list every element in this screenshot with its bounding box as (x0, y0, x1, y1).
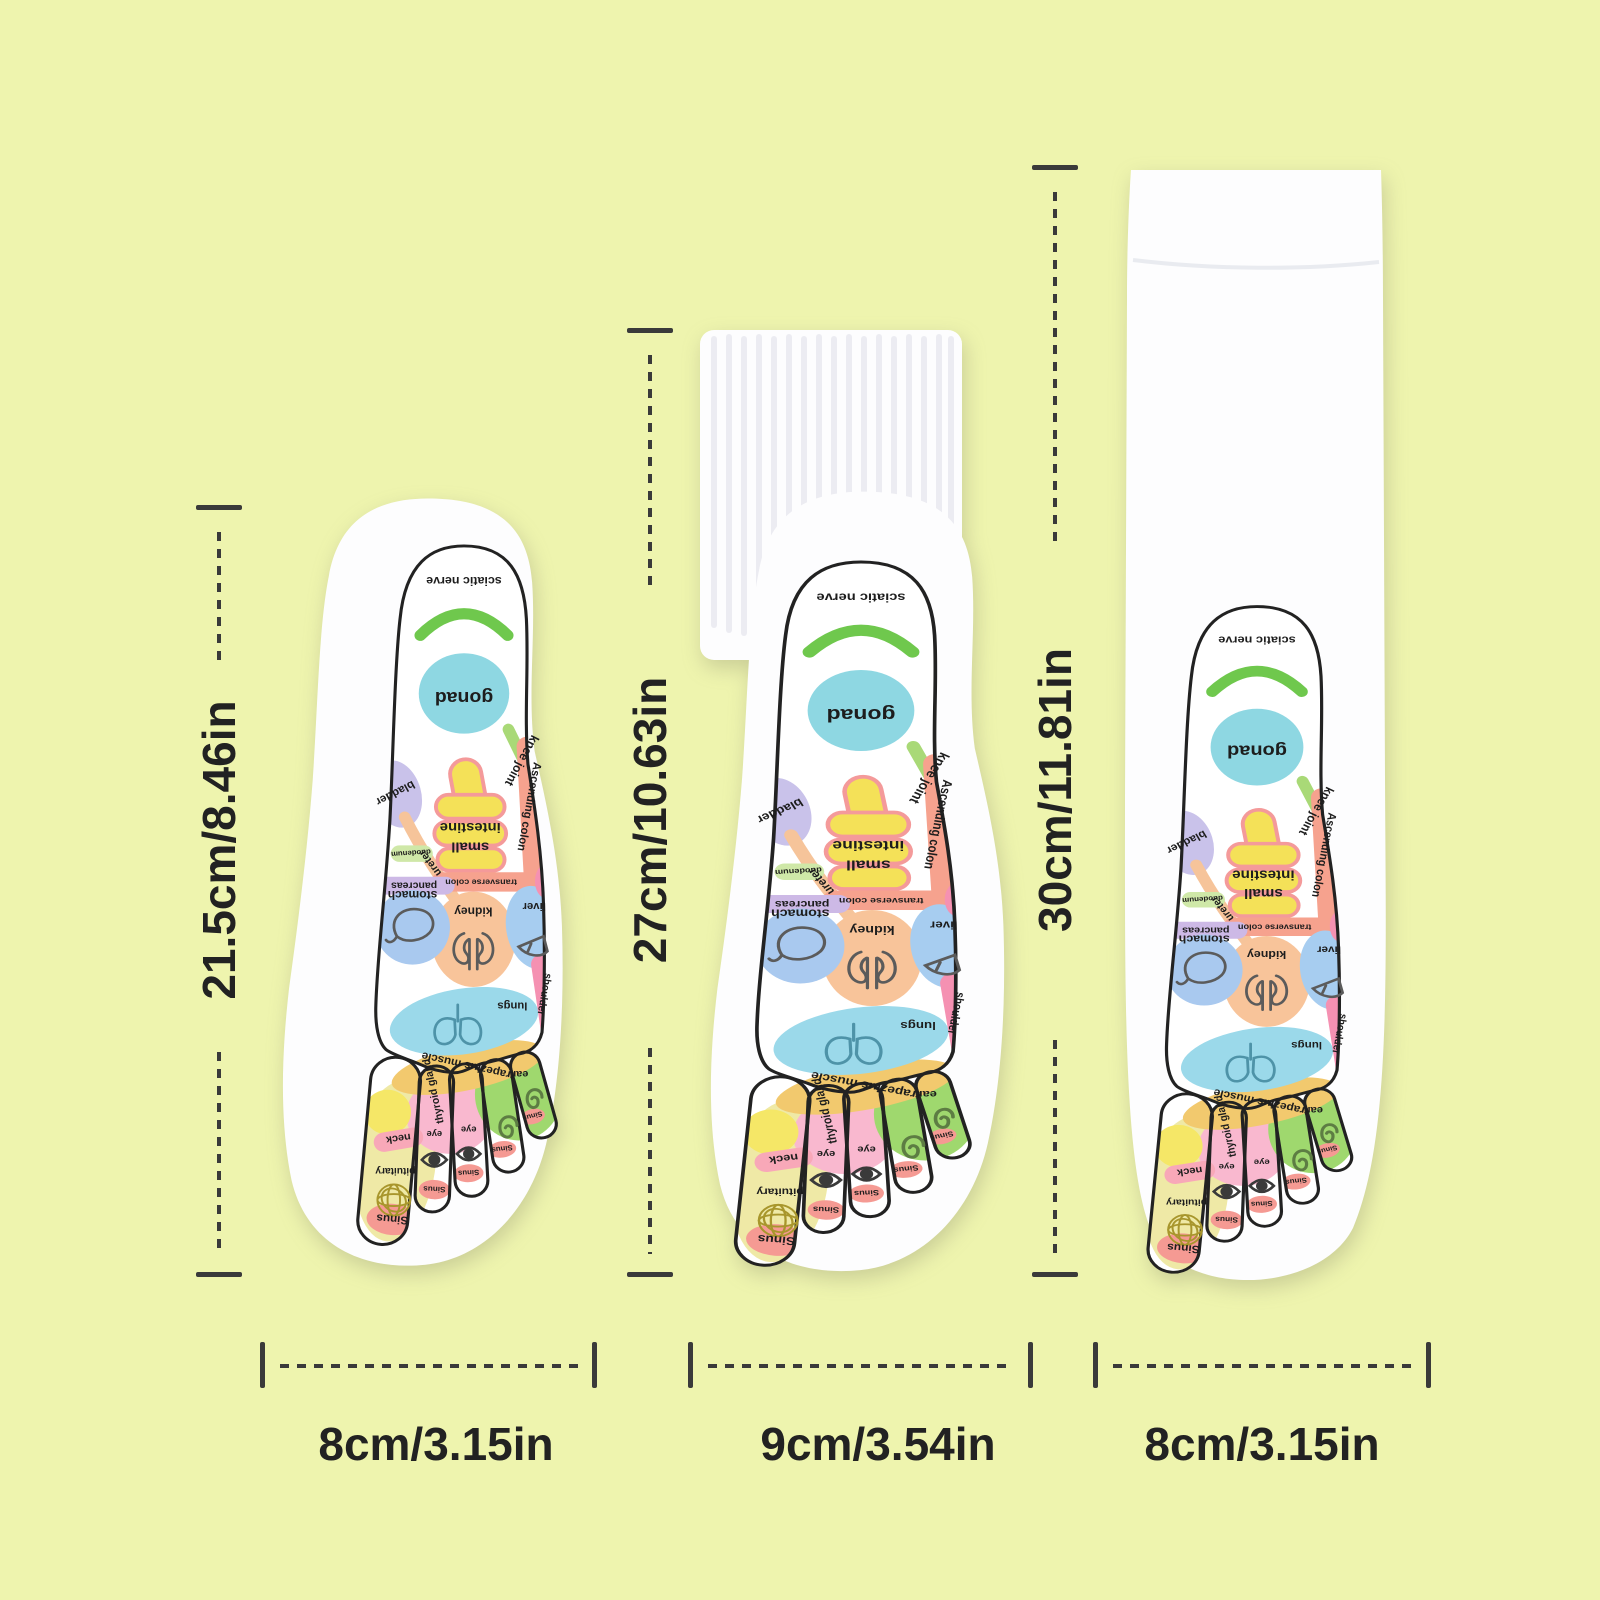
dimension-dashes (1053, 192, 1057, 542)
crew-sock (1095, 158, 1415, 1303)
width-label-left: 8cm/3.15in (236, 1416, 636, 1472)
dimension-dashes (708, 1364, 1014, 1368)
dimension-dashes (648, 1048, 652, 1254)
no-show-sock (252, 492, 597, 1282)
dimension-dashes (280, 1364, 578, 1368)
dimension-tick (1032, 1272, 1078, 1277)
width-label-middle: 9cm/3.54in (678, 1416, 1078, 1472)
dimension-tick (688, 1342, 693, 1388)
dimension-dashes (217, 532, 221, 660)
dimension-tick (1028, 1342, 1033, 1388)
height-label-right: 30cm/11.81in (1027, 590, 1083, 990)
dimension-tick (1032, 165, 1078, 170)
dimension-tick (627, 1272, 673, 1277)
dimension-dashes (1053, 1040, 1057, 1254)
ankle-sock (688, 325, 1028, 1285)
sock-size-chart: sciatic nerve gonad knee joint bladder u… (0, 0, 1600, 1600)
dimension-tick (196, 505, 242, 510)
dimension-dashes (217, 1052, 221, 1252)
dimension-tick (1093, 1342, 1098, 1388)
dimension-dashes (1113, 1364, 1413, 1368)
height-label-middle: 27cm/10.63in (622, 620, 678, 1020)
dimension-tick (592, 1342, 597, 1388)
width-label-right: 8cm/3.15in (1062, 1416, 1462, 1472)
dimension-tick (1426, 1342, 1431, 1388)
dimension-dashes (648, 355, 652, 593)
dimension-tick (627, 328, 673, 333)
dimension-tick (260, 1342, 265, 1388)
height-label-left: 21.5cm/8.46in (191, 650, 247, 1050)
dimension-tick (196, 1272, 242, 1277)
